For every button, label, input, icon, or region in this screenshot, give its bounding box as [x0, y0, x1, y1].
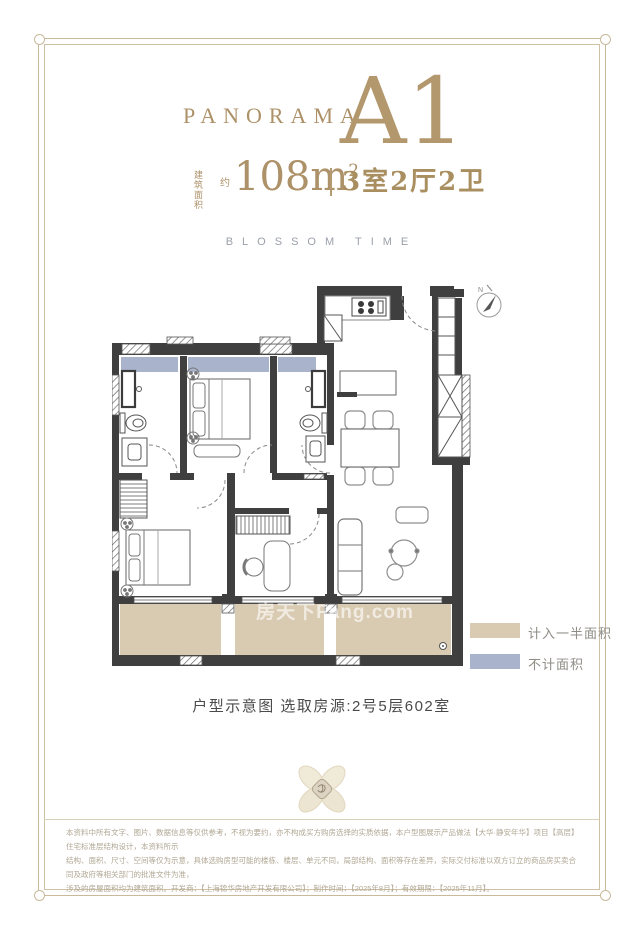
legend-swatch-excluded: [470, 654, 520, 669]
area-value: 108m2: [234, 154, 359, 200]
compass-icon: N: [477, 285, 501, 317]
area-label: 建筑 面积: [194, 170, 203, 210]
svg-text:N: N: [478, 287, 483, 294]
legend-label-excluded: 不计面积: [528, 654, 584, 673]
bathroom-top-left: [120, 371, 147, 466]
disclaimer-line-1: 本资料中所有文字、图片、数据信息等仅供参考，不视为要约，亦不构成买方购房选择的实…: [66, 826, 578, 854]
brand-title: PANORAMA: [183, 103, 363, 129]
bedroom-bottom-left: [120, 480, 190, 597]
disclaimer-divider: [44, 819, 599, 820]
legend-label-half-area: 计入一半面积: [528, 623, 612, 642]
corner-ornament-tr: [600, 34, 611, 45]
floor-plan-svg: N: [112, 283, 508, 675]
bedroom-top: [187, 368, 250, 457]
floor-plan: N: [112, 283, 508, 675]
balcony-half-area: [120, 604, 451, 655]
corner-ornament-br: [600, 890, 611, 901]
disclaimer-line-3: 涉及的房屋面积均为建筑面积。开发商：【上海锦华房地产开发有限公司】；制作时间：【…: [66, 882, 578, 896]
corner-ornament-tl: [34, 34, 45, 45]
tagline: BLOSSOM TIME: [0, 236, 643, 248]
area-approx-label: 约: [220, 174, 230, 189]
corner-ornament-bl: [34, 890, 45, 901]
disclaimer-line-2: 结构、面积、尺寸、空间等仅为示意，具体选购房型可能的楼栋、楼层、单元不同，局部结…: [66, 854, 578, 882]
divider-bar: [330, 168, 332, 196]
legend-swatch-half-area: [470, 623, 520, 638]
poster-page: PANORAMA A1 建筑 面积 约 108m2 3室2厅2卫 BLOSSOM…: [0, 0, 643, 933]
dining-set: [341, 411, 399, 485]
study-room: [236, 516, 290, 591]
unit-code: A1: [340, 66, 465, 158]
excluded-area-strips: [121, 357, 316, 372]
living-room: [338, 507, 428, 595]
rooms-label: 3室2厅2卫: [342, 161, 486, 198]
kitchen: [324, 296, 396, 397]
disclaimer: 本资料中所有文字、图片、数据信息等仅供参考，不视为要约，亦不构成买方购房选择的实…: [66, 826, 578, 896]
caption: 户型示意图 选取房源:2号5层602室: [0, 695, 643, 716]
balcony-windows: [134, 597, 442, 603]
flower-ornament-icon: [290, 757, 354, 821]
bathroom-top-right: [300, 371, 327, 462]
